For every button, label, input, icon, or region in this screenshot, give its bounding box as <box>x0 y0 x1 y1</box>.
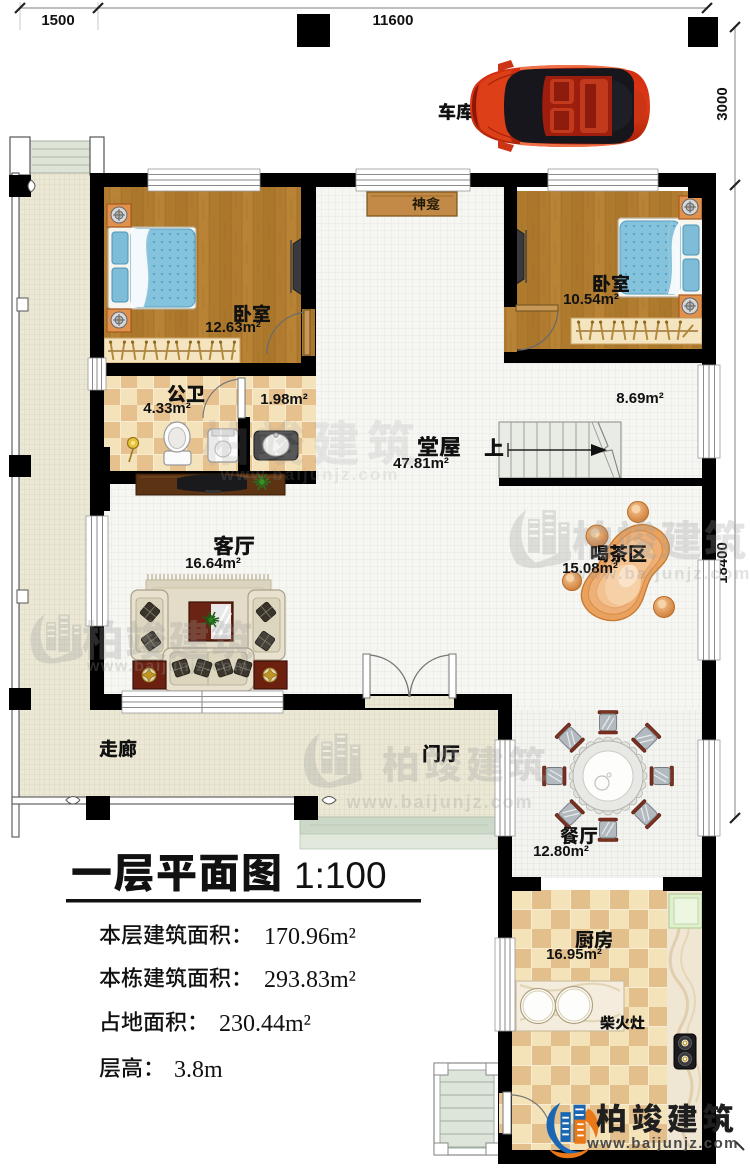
svg-text:3.8m: 3.8m <box>174 1057 223 1083</box>
svg-text:4.33m²: 4.33m² <box>143 400 191 417</box>
svg-text:16.64m²: 16.64m² <box>185 555 241 572</box>
svg-text:1:100: 1:100 <box>294 855 387 896</box>
svg-text:1500: 1500 <box>41 12 74 29</box>
svg-text:www.baijunjz.com: www.baijunjz.com <box>586 1135 739 1152</box>
svg-text:11600: 11600 <box>373 12 414 29</box>
svg-text:www.baijunjz.com: www.baijunjz.com <box>345 792 533 812</box>
svg-text:12.80m²: 12.80m² <box>533 843 589 860</box>
svg-text:16.95m²: 16.95m² <box>546 946 602 963</box>
svg-text:230.44m²: 230.44m² <box>219 1011 311 1037</box>
svg-text:1.98m²: 1.98m² <box>260 391 308 408</box>
svg-text:www.baijunjz.com: www.baijunjz.com <box>220 465 400 484</box>
svg-text:8.69m²: 8.69m² <box>616 390 664 407</box>
svg-text:170.96m²: 170.96m² <box>264 924 356 950</box>
svg-text:12.63m²: 12.63m² <box>205 319 261 336</box>
svg-text:293.83m²: 293.83m² <box>264 967 356 993</box>
svg-text:3000: 3000 <box>714 87 731 120</box>
svg-text:www.baijunjz.com: www.baijunjz.com <box>572 564 750 583</box>
svg-text:www.baijunjz.com: www.baijunjz.com <box>86 658 249 675</box>
svg-text:10.54m²: 10.54m² <box>563 291 619 308</box>
